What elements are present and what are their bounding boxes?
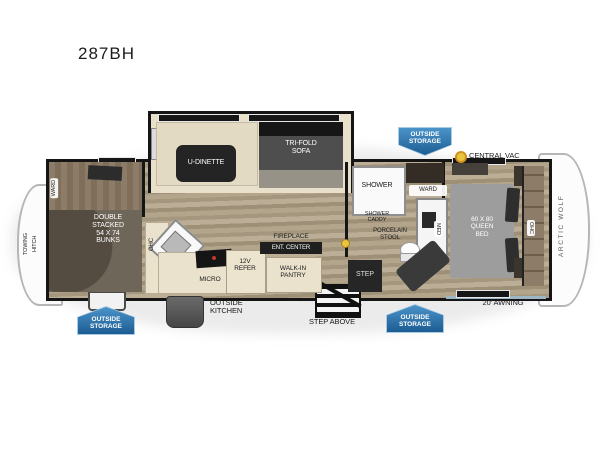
cooktop-knob <box>212 256 216 260</box>
central-vac-label: CENTRAL VAC <box>469 152 549 160</box>
wall-bunkroom <box>142 162 145 217</box>
slideout-window <box>248 114 340 122</box>
outside-storage-label: OUTSIDE STORAGE <box>386 314 444 329</box>
tri-fold-sofa-label: TRI-FOLD SOFA <box>259 140 343 156</box>
central-vac-icon <box>455 151 467 163</box>
awning-label: 20' AWNING <box>468 299 538 307</box>
shower <box>352 166 406 216</box>
shower-label: SHOWER <box>352 182 402 190</box>
bunk-ward-label: WARD <box>50 178 58 198</box>
page-title: 287BH <box>78 44 135 63</box>
sofa-back <box>259 122 343 136</box>
step-label: STEP <box>348 271 382 279</box>
queen-bed-label: 60 X 80 QUEEN BED <box>450 216 514 238</box>
window <box>456 290 510 298</box>
step-above-label: STEP ABOVE <box>296 318 368 326</box>
kitchen-ohc-label: OHC <box>149 238 156 251</box>
floorplan-canvas: 287BH TOWING HITCH ARCTIC WOLF U-DINETTE… <box>0 0 600 450</box>
sofa-carpet <box>259 170 343 188</box>
bath-ward-label: WARD <box>409 185 447 196</box>
outside-storage-badge-top: OUTSIDE STORAGE <box>398 127 452 156</box>
outside-storage-badge-mid: OUTSIDE STORAGE <box>386 304 444 333</box>
towing-hitch-label: TOWING HITCH <box>22 214 40 274</box>
outside-storage-label: OUTSIDE STORAGE <box>77 316 135 331</box>
slideout-window <box>158 114 240 122</box>
brand-label: ARCTIC WOLF <box>558 176 565 276</box>
bedroom-dresser <box>452 163 488 175</box>
outside-storage-badge-left: OUTSIDE STORAGE <box>77 306 135 335</box>
shower-caddy-label: SHOWER CADDY <box>352 211 402 223</box>
central-vac-unit <box>341 239 350 248</box>
porcelain-stool-label: PORCELAIN STOOL <box>364 228 416 241</box>
micro-label: MICRO <box>188 276 232 283</box>
wardrobe-item <box>88 165 123 181</box>
refer-label: 12V REFER <box>226 258 264 273</box>
ent-center-label: ENT. CENTER <box>260 245 322 252</box>
outside-storage-label: OUTSIDE STORAGE <box>398 131 452 146</box>
u-dinette-label: U-DINETTE <box>176 159 236 167</box>
walk-in-pantry-label: WALK-IN PANTRY <box>266 265 320 280</box>
bedroom-ohc-label: OHC <box>527 220 535 236</box>
fireplace-label: FIREPLACE <box>262 233 320 240</box>
med-label: MED <box>434 221 442 237</box>
bath-ward-cabinet <box>406 163 444 183</box>
outside-kitchen-label: OUTSIDE KITCHEN <box>196 299 268 316</box>
bunks-label: DOUBLE STACKED 54 X 74 BUNKS <box>72 214 144 245</box>
